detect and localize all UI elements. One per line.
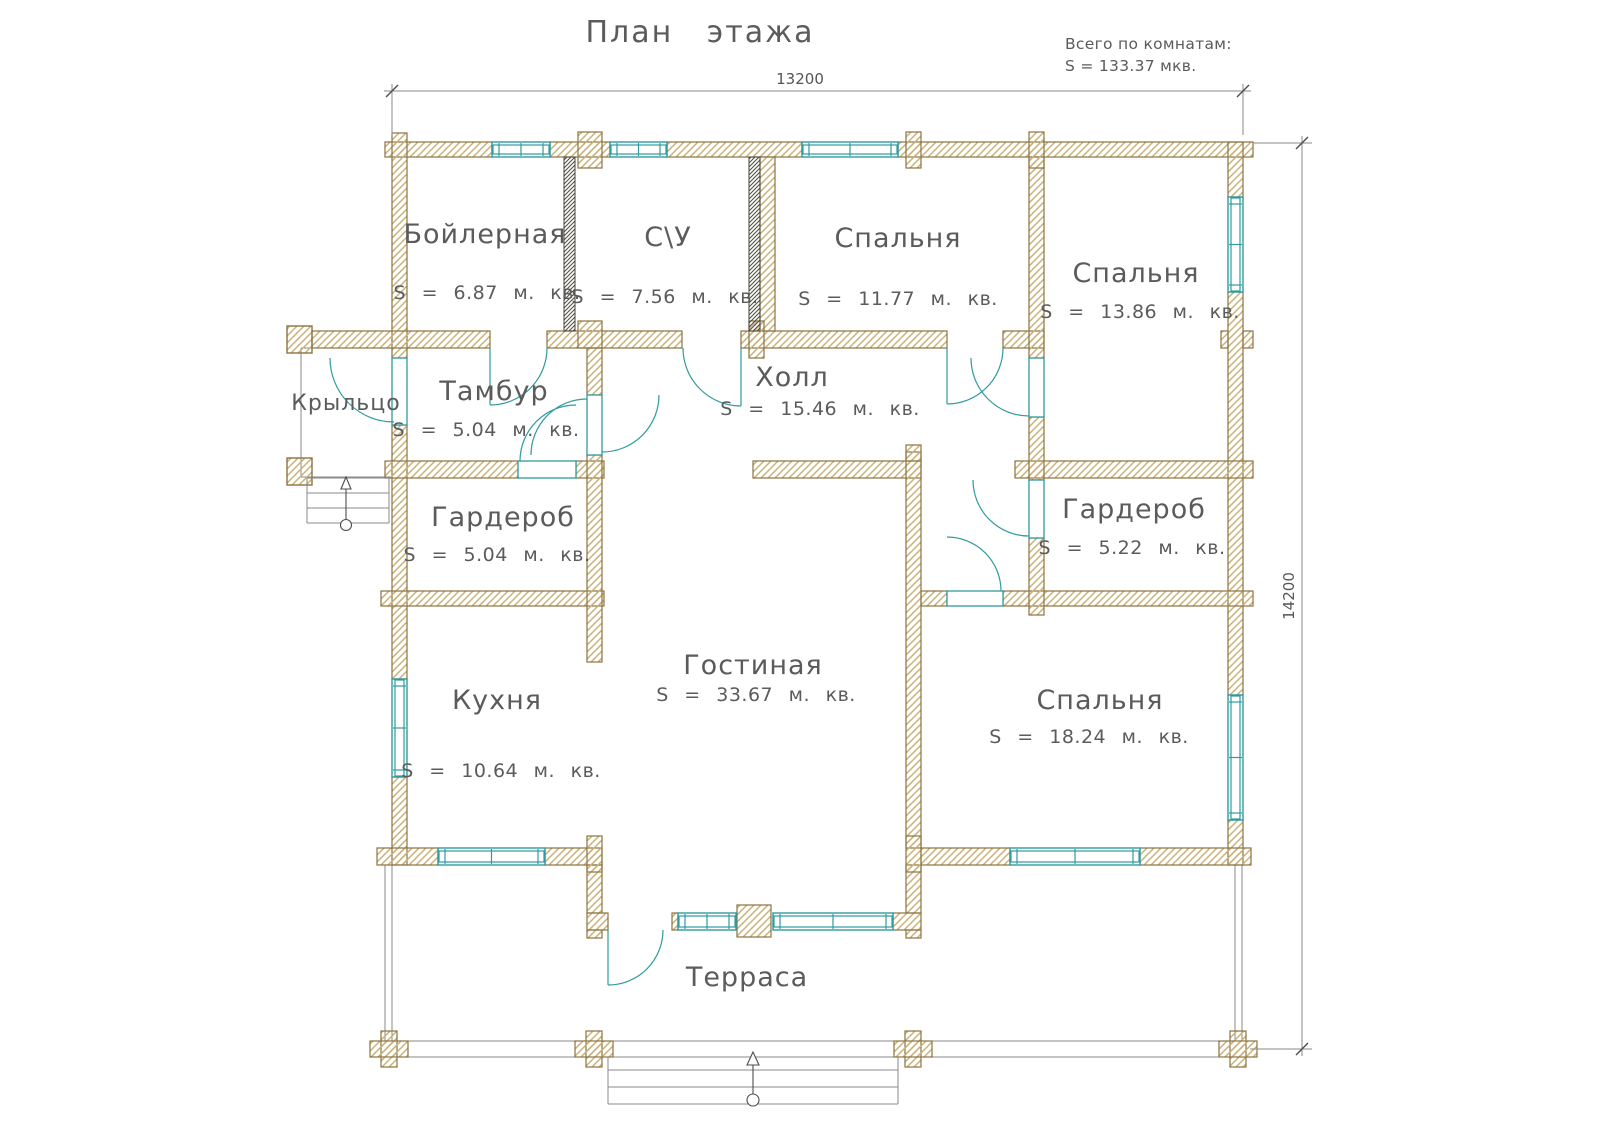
wall-segment xyxy=(898,142,1253,157)
room-name: Спальня xyxy=(1036,685,1163,716)
door-leaf xyxy=(518,461,576,478)
window xyxy=(773,913,893,930)
door-swing-arc xyxy=(947,348,1003,404)
door-swing-arc xyxy=(947,537,1001,591)
wall-segment xyxy=(578,321,602,348)
room-area: S = 13.86 м. кв. xyxy=(1040,301,1240,323)
door-swing-arc xyxy=(973,480,1029,536)
wall-segment xyxy=(906,445,921,461)
room-name: С\У xyxy=(644,222,691,253)
window xyxy=(610,142,667,157)
porch-post xyxy=(287,458,312,485)
wall-segment xyxy=(753,461,921,478)
room-name: Крыльцо xyxy=(291,391,400,416)
wall-segment xyxy=(894,1041,932,1057)
wall-segment xyxy=(1228,142,1243,197)
door-leaf xyxy=(947,591,1003,606)
room-name: Гардероб xyxy=(1062,494,1206,525)
room-label-bedroom1: Спальня S = 11.77 м. кв. xyxy=(798,223,998,310)
window xyxy=(1010,848,1140,865)
room-label-living: Гостиная S = 33.67 м. кв. xyxy=(656,650,856,706)
page-title: План этажа xyxy=(585,15,814,50)
door-swing-arc xyxy=(608,930,663,985)
summary-heading: Всего по комнатам: xyxy=(1065,35,1232,53)
wall-segment xyxy=(385,461,518,478)
room-label-bedroom2: Спальня S = 13.86 м. кв. xyxy=(1040,258,1240,323)
room-label-wardrobe1: Гардероб S = 5.04 м. кв. xyxy=(403,502,590,566)
wall-segment xyxy=(921,591,947,606)
room-area: S = 5.04 м. кв. xyxy=(392,419,579,441)
porch-post xyxy=(287,326,312,353)
door-swing-arc xyxy=(602,395,659,452)
room-name: Холл xyxy=(755,362,829,393)
wall-segment xyxy=(578,132,602,168)
wall-segment xyxy=(667,142,802,157)
wall-segment xyxy=(381,591,604,606)
wall-segment xyxy=(741,331,947,348)
dimension-width-label: 13200 xyxy=(776,70,824,88)
stair-arrow-head xyxy=(747,1052,759,1065)
stair-arrow-head xyxy=(341,477,351,489)
room-label-terrace: Терраса xyxy=(685,962,808,993)
wall-segment xyxy=(906,836,921,872)
room-area: S = 5.22 м. кв. xyxy=(1038,537,1225,559)
wall-segment xyxy=(575,1041,613,1057)
wall-segment xyxy=(906,930,921,938)
wall-segment xyxy=(587,348,602,395)
room-area: S = 10.64 м. кв. xyxy=(401,760,601,782)
room-label-porch: Крыльцо xyxy=(291,391,400,416)
room-label-kitchen: Кухня S = 10.64 м. кв. xyxy=(401,685,601,782)
room-name: Спальня xyxy=(834,223,961,254)
wall-segment xyxy=(370,1041,408,1057)
wall-segment xyxy=(1029,417,1044,480)
floor-plan-drawing: План этажа Всего по комнатам: S = 133.37… xyxy=(0,0,1600,1130)
room-area: S = 7.56 м. кв. xyxy=(571,286,758,308)
wall-segment xyxy=(893,913,921,930)
wall-segment xyxy=(1221,331,1228,348)
room-label-su: С\У S = 7.56 м. кв. xyxy=(571,222,758,308)
room-area: S = 11.77 м. кв. xyxy=(798,288,998,310)
room-area: S = 18.24 м. кв. xyxy=(989,726,1189,748)
room-name: Гардероб xyxy=(431,502,575,533)
wall-segment xyxy=(587,930,602,938)
room-name: Терраса xyxy=(685,962,808,993)
wall-segment xyxy=(906,452,921,848)
wall-segment xyxy=(587,836,602,872)
room-label-wardrobe2: Гардероб S = 5.22 м. кв. xyxy=(1038,494,1225,559)
wall-segment xyxy=(921,848,1010,865)
door-leaf xyxy=(1029,480,1044,538)
wall-segment xyxy=(1140,848,1251,865)
room-label-hall: Холл S = 15.46 м. кв. xyxy=(720,362,920,420)
room-area: S = 33.67 м. кв. xyxy=(656,684,856,706)
wall-segment xyxy=(547,331,682,348)
room-name: Гостиная xyxy=(683,650,823,681)
wall-segment xyxy=(1228,292,1243,695)
room-name: Тамбур xyxy=(438,376,548,407)
wall-segment xyxy=(760,157,775,331)
window xyxy=(678,913,736,930)
room-label-bedroom3: Спальня S = 18.24 м. кв. xyxy=(989,685,1189,748)
wall-segment xyxy=(906,132,921,168)
wall-segment xyxy=(312,331,490,348)
window xyxy=(438,848,545,865)
wall-segment xyxy=(737,905,771,937)
stair-arrow-origin xyxy=(747,1094,759,1106)
door-leaf xyxy=(587,395,602,455)
window xyxy=(1228,197,1243,292)
wall-segment xyxy=(1243,331,1253,348)
window xyxy=(492,142,550,157)
wall-segment xyxy=(672,913,678,930)
wall-segment xyxy=(1029,157,1044,358)
window xyxy=(802,142,898,157)
room-name: Спальня xyxy=(1072,258,1199,289)
wall-segment xyxy=(377,848,438,865)
door-leaf xyxy=(1029,358,1044,417)
summary-total: S = 133.37 мкв. xyxy=(1065,57,1196,75)
room-name: Кухня xyxy=(452,685,542,716)
stair-arrow-origin xyxy=(341,520,352,531)
room-name: Бойлерная xyxy=(403,219,566,250)
wall-segment xyxy=(1015,461,1253,478)
room-label-tambur: Тамбур S = 5.04 м. кв. xyxy=(392,376,579,441)
window xyxy=(1228,695,1243,820)
room-area: S = 5.04 м. кв. xyxy=(403,544,590,566)
room-area: S = 6.87 м. кв. xyxy=(393,282,580,304)
dimension-height-label: 14200 xyxy=(1280,572,1298,620)
wall-segment xyxy=(1029,132,1044,168)
wall-segment xyxy=(587,913,608,930)
room-area: S = 15.46 м. кв. xyxy=(720,398,920,420)
floor-plan-page: План этажа Всего по комнатам: S = 133.37… xyxy=(0,0,1600,1130)
room-label-boilernaya: Бойлерная S = 6.87 м. кв. xyxy=(393,219,580,304)
